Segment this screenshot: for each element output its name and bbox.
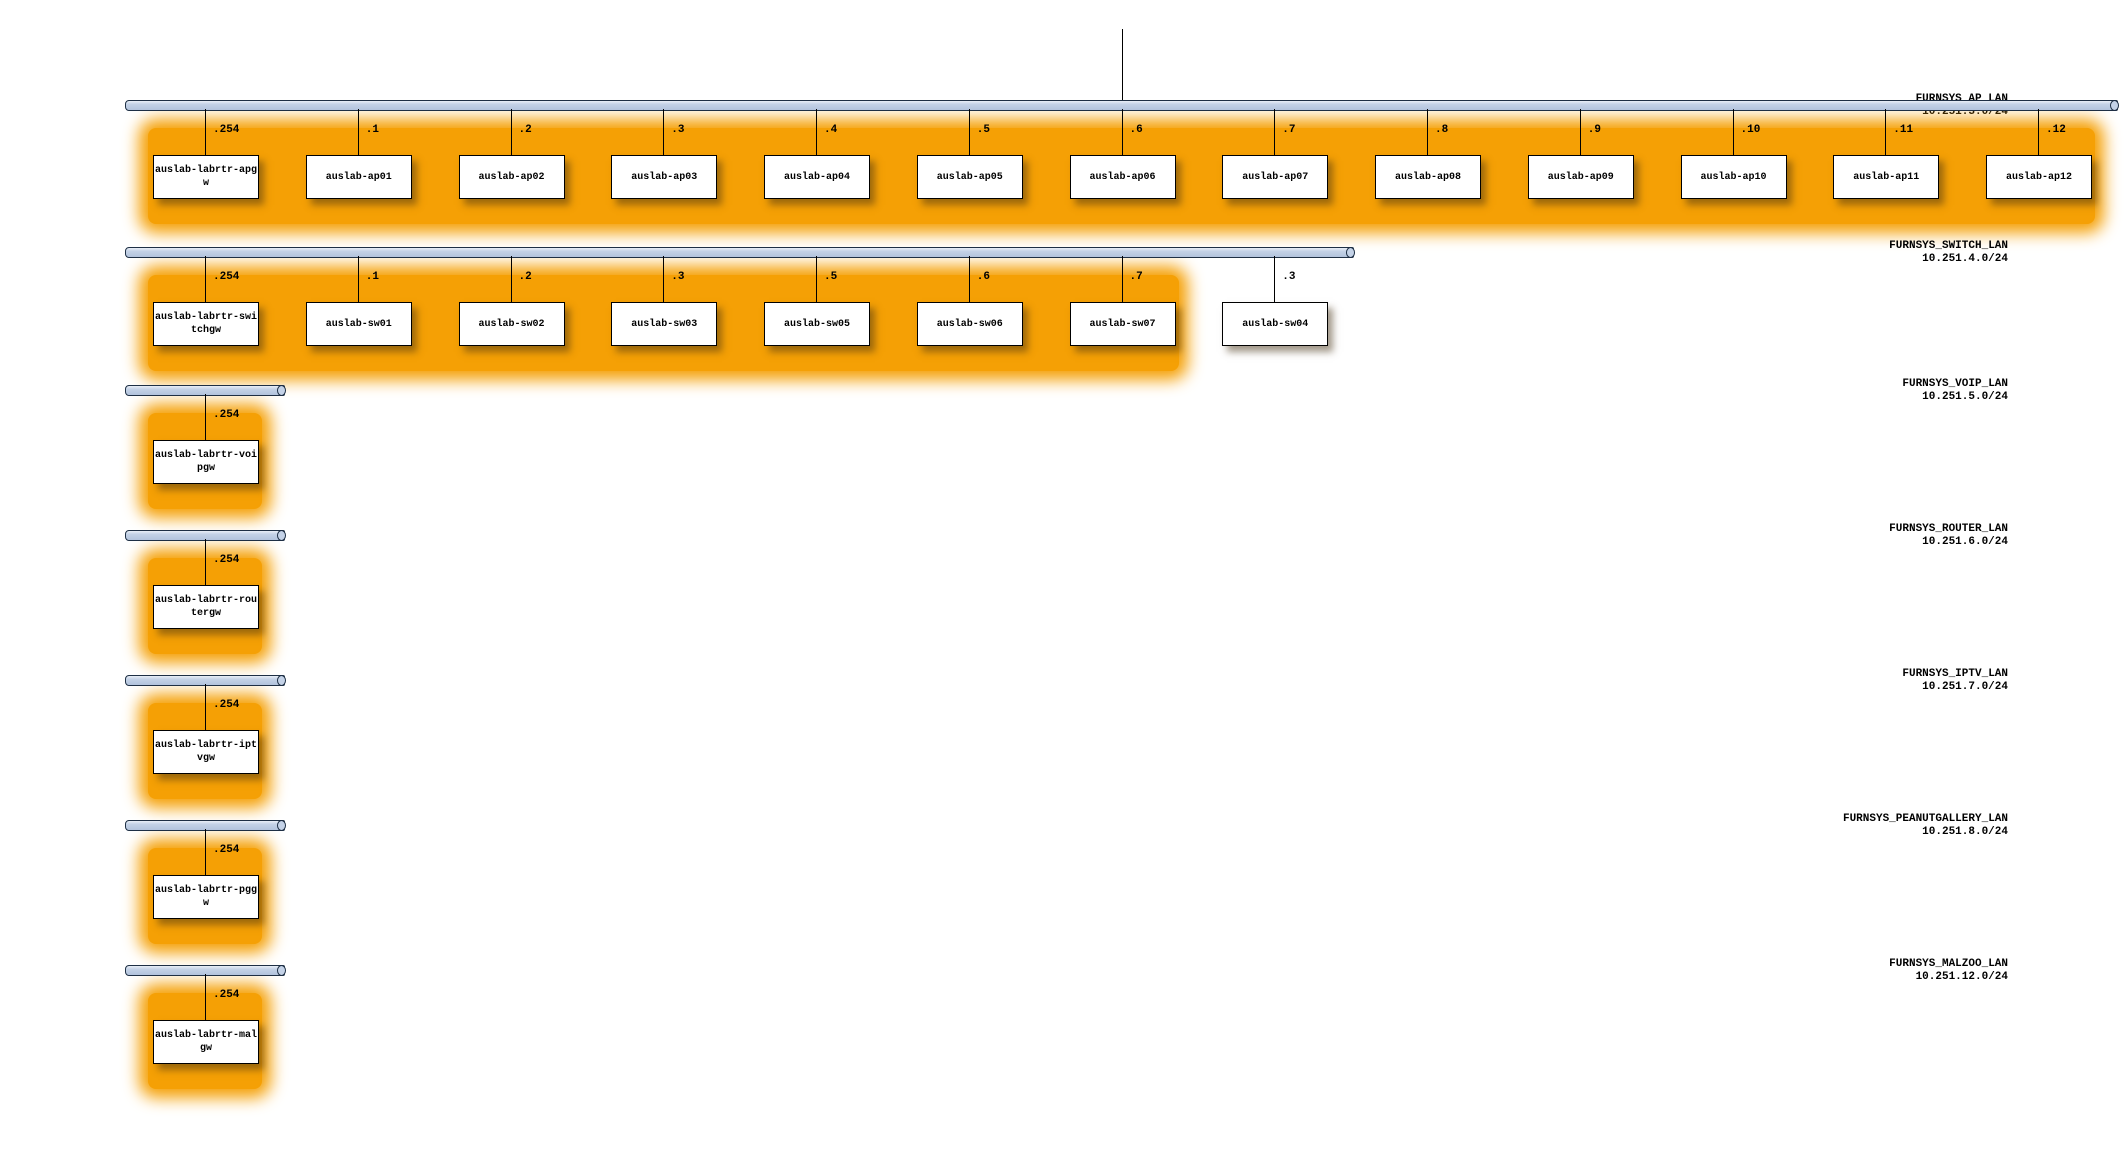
node-ip-label: .254 bbox=[213, 409, 239, 421]
node-ip-label: .254 bbox=[213, 989, 239, 1001]
node-box: auslab-labrtr-iptvgw bbox=[153, 730, 259, 774]
network-diagram-canvas: FURNSYS_AP_LAN10.251.3.0/24.254auslab-la… bbox=[0, 0, 2128, 1164]
node-name: auslab-sw06 bbox=[937, 318, 1003, 331]
node-name: auslab-labrtr-pgg bbox=[155, 884, 257, 897]
node-link-line bbox=[816, 109, 817, 156]
node-link-line bbox=[1122, 256, 1123, 303]
node-box: auslab-sw06 bbox=[917, 302, 1023, 346]
bar-end-cap bbox=[277, 820, 286, 831]
node-link-line bbox=[511, 256, 512, 303]
node-name: auslab-labrtr-rou bbox=[155, 594, 257, 607]
node-link-line bbox=[205, 829, 206, 876]
node-name: auslab-labrtr-swi bbox=[155, 311, 257, 324]
node-name: gw bbox=[200, 1042, 212, 1055]
node-link-line bbox=[969, 109, 970, 156]
node-link-line bbox=[1427, 109, 1428, 156]
node-name: auslab-ap12 bbox=[2006, 171, 2072, 184]
node-ip-label: .10 bbox=[1741, 124, 1761, 136]
node-link-line bbox=[816, 256, 817, 303]
network-label: FURNSYS_IPTV_LAN10.251.7.0/24 bbox=[1902, 668, 2008, 694]
node-ip-label: .11 bbox=[1893, 124, 1913, 136]
node-ip-label: .9 bbox=[1588, 124, 1601, 136]
network-label: FURNSYS_ROUTER_LAN10.251.6.0/24 bbox=[1889, 523, 2008, 549]
node-link-line bbox=[205, 684, 206, 731]
node-link-line bbox=[205, 974, 206, 1021]
node-ip-label: .254 bbox=[213, 271, 239, 283]
node-box: auslab-sw04 bbox=[1222, 302, 1328, 346]
node-name: auslab-ap03 bbox=[631, 171, 697, 184]
node-link-line bbox=[358, 256, 359, 303]
node-link-line bbox=[1274, 256, 1275, 303]
node-ip-label: .1 bbox=[366, 124, 379, 136]
node-ip-label: .254 bbox=[213, 844, 239, 856]
bar-end-cap bbox=[2110, 100, 2119, 111]
network-name: FURNSYS_IPTV_LAN bbox=[1902, 668, 2008, 681]
node-name: auslab-ap01 bbox=[326, 171, 392, 184]
network-label: FURNSYS_MALZOO_LAN10.251.12.0/24 bbox=[1889, 958, 2008, 984]
node-box: auslab-sw03 bbox=[611, 302, 717, 346]
node-ip-label: .3 bbox=[1282, 271, 1295, 283]
network-name: FURNSYS_VOIP_LAN bbox=[1902, 378, 2008, 391]
node-name: auslab-sw05 bbox=[784, 318, 850, 331]
bar-end-cap bbox=[277, 965, 286, 976]
node-box: auslab-labrtr-routergw bbox=[153, 585, 259, 629]
bar-end-cap bbox=[277, 530, 286, 541]
network-subnet: 10.251.4.0/24 bbox=[1889, 253, 2008, 266]
node-name: w bbox=[203, 897, 209, 910]
node-name: auslab-ap10 bbox=[1700, 171, 1766, 184]
node-box: auslab-ap07 bbox=[1222, 155, 1328, 199]
node-box: auslab-sw01 bbox=[306, 302, 412, 346]
node-name: auslab-sw01 bbox=[326, 318, 392, 331]
node-link-line bbox=[1580, 109, 1581, 156]
node-link-line bbox=[1733, 109, 1734, 156]
node-box: auslab-ap09 bbox=[1528, 155, 1634, 199]
node-box: auslab-ap03 bbox=[611, 155, 717, 199]
node-name: auslab-labrtr-mal bbox=[155, 1029, 257, 1042]
node-box: auslab-ap06 bbox=[1070, 155, 1176, 199]
node-link-line bbox=[205, 539, 206, 586]
network-label: FURNSYS_VOIP_LAN10.251.5.0/24 bbox=[1902, 378, 2008, 404]
node-box: auslab-sw05 bbox=[764, 302, 870, 346]
node-box: auslab-labrtr-voipgw bbox=[153, 440, 259, 484]
network-name: FURNSYS_PEANUTGALLERY_LAN bbox=[1843, 813, 2008, 826]
node-ip-label: .254 bbox=[213, 699, 239, 711]
node-link-line bbox=[1122, 109, 1123, 156]
node-ip-label: .3 bbox=[671, 124, 684, 136]
node-ip-label: .5 bbox=[824, 271, 837, 283]
node-name: auslab-sw02 bbox=[478, 318, 544, 331]
node-name: auslab-ap06 bbox=[1089, 171, 1155, 184]
node-name: auslab-ap04 bbox=[784, 171, 850, 184]
node-ip-label: .3 bbox=[671, 271, 684, 283]
node-box: auslab-ap04 bbox=[764, 155, 870, 199]
node-ip-label: .4 bbox=[824, 124, 837, 136]
node-name: auslab-sw03 bbox=[631, 318, 697, 331]
node-box: auslab-ap01 bbox=[306, 155, 412, 199]
node-link-line bbox=[969, 256, 970, 303]
node-name: auslab-ap11 bbox=[1853, 171, 1919, 184]
node-name: auslab-labrtr-apg bbox=[155, 164, 257, 177]
node-name: auslab-labrtr-voi bbox=[155, 449, 257, 462]
node-ip-label: .6 bbox=[977, 271, 990, 283]
node-ip-label: .7 bbox=[1282, 124, 1295, 136]
node-box: auslab-labrtr-apgw bbox=[153, 155, 259, 199]
network-name: FURNSYS_SWITCH_LAN bbox=[1889, 240, 2008, 253]
node-ip-label: .254 bbox=[213, 124, 239, 136]
node-ip-label: .8 bbox=[1435, 124, 1448, 136]
node-name: auslab-ap05 bbox=[937, 171, 1003, 184]
bar-end-cap bbox=[277, 675, 286, 686]
network-name: FURNSYS_MALZOO_LAN bbox=[1889, 958, 2008, 971]
uplink-line bbox=[1122, 29, 1123, 100]
network-subnet: 10.251.7.0/24 bbox=[1902, 681, 2008, 694]
network-subnet: 10.251.8.0/24 bbox=[1843, 826, 2008, 839]
node-ip-label: .12 bbox=[2046, 124, 2066, 136]
node-link-line bbox=[663, 256, 664, 303]
network-bar bbox=[125, 247, 1354, 258]
node-link-line bbox=[511, 109, 512, 156]
node-link-line bbox=[205, 256, 206, 303]
network-subnet: 10.251.6.0/24 bbox=[1889, 536, 2008, 549]
node-ip-label: .254 bbox=[213, 554, 239, 566]
node-ip-label: .6 bbox=[1130, 124, 1143, 136]
node-name: vgw bbox=[197, 752, 215, 765]
network-subnet: 10.251.5.0/24 bbox=[1902, 391, 2008, 404]
node-name: auslab-ap09 bbox=[1548, 171, 1614, 184]
node-box: auslab-labrtr-switchgw bbox=[153, 302, 259, 346]
node-link-line bbox=[663, 109, 664, 156]
node-ip-label: .1 bbox=[366, 271, 379, 283]
node-name: auslab-labrtr-ipt bbox=[155, 739, 257, 752]
node-link-line bbox=[1885, 109, 1886, 156]
node-box: auslab-ap12 bbox=[1986, 155, 2092, 199]
node-box: auslab-sw02 bbox=[459, 302, 565, 346]
node-ip-label: .5 bbox=[977, 124, 990, 136]
network-label: FURNSYS_SWITCH_LAN10.251.4.0/24 bbox=[1889, 240, 2008, 266]
node-name: pgw bbox=[197, 462, 215, 475]
node-box: auslab-sw07 bbox=[1070, 302, 1176, 346]
node-box: auslab-labrtr-malgw bbox=[153, 1020, 259, 1064]
node-name: auslab-sw04 bbox=[1242, 318, 1308, 331]
network-label: FURNSYS_PEANUTGALLERY_LAN10.251.8.0/24 bbox=[1843, 813, 2008, 839]
node-link-line bbox=[2038, 109, 2039, 156]
node-name: auslab-sw07 bbox=[1089, 318, 1155, 331]
node-name: tergw bbox=[191, 607, 221, 620]
node-box: auslab-ap02 bbox=[459, 155, 565, 199]
node-ip-label: .2 bbox=[519, 271, 532, 283]
node-box: auslab-ap11 bbox=[1833, 155, 1939, 199]
bar-end-cap bbox=[277, 385, 286, 396]
node-link-line bbox=[205, 109, 206, 156]
node-box: auslab-ap08 bbox=[1375, 155, 1481, 199]
node-box: auslab-ap10 bbox=[1681, 155, 1787, 199]
network-name: FURNSYS_ROUTER_LAN bbox=[1889, 523, 2008, 536]
node-ip-label: .2 bbox=[519, 124, 532, 136]
node-name: auslab-ap02 bbox=[478, 171, 544, 184]
node-name: auslab-ap07 bbox=[1242, 171, 1308, 184]
node-box: auslab-labrtr-pggw bbox=[153, 875, 259, 919]
node-link-line bbox=[358, 109, 359, 156]
node-box: auslab-ap05 bbox=[917, 155, 1023, 199]
network-subnet: 10.251.12.0/24 bbox=[1889, 971, 2008, 984]
node-name: w bbox=[203, 177, 209, 190]
node-link-line bbox=[1274, 109, 1275, 156]
bar-end-cap bbox=[1346, 247, 1355, 258]
node-link-line bbox=[205, 394, 206, 441]
node-name: auslab-ap08 bbox=[1395, 171, 1461, 184]
node-ip-label: .7 bbox=[1130, 271, 1143, 283]
node-name: tchgw bbox=[191, 324, 221, 337]
